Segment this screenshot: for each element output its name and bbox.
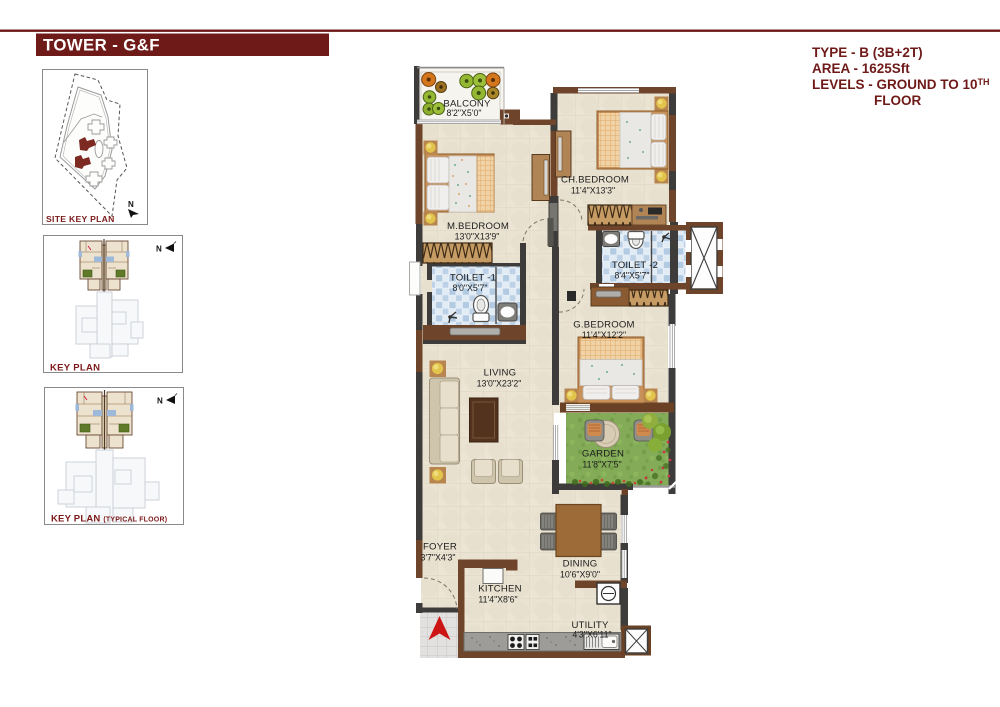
svg-text:TYPE - B (3B+2T): TYPE - B (3B+2T) [812, 45, 923, 60]
svg-text:GARDEN: GARDEN [582, 449, 624, 460]
svg-text:G.BEDROOM: G.BEDROOM [573, 320, 635, 331]
svg-text:13'0"X13'9": 13'0"X13'9" [455, 232, 500, 242]
svg-text:SITE KEY PLAN: SITE KEY PLAN [46, 214, 115, 224]
svg-text:11'4"X8'6": 11'4"X8'6" [478, 595, 517, 605]
svg-text:CH.BEDROOM: CH.BEDROOM [561, 175, 629, 186]
svg-text:11'4"X13'3": 11'4"X13'3" [571, 186, 615, 196]
svg-text:10'6"X9'0": 10'6"X9'0" [560, 570, 600, 580]
svg-text:TOILET -1: TOILET -1 [450, 273, 496, 284]
svg-text:8'4"X5'7": 8'4"X5'7" [614, 271, 649, 281]
svg-text:AREA - 1625Sft: AREA - 1625Sft [812, 61, 910, 76]
svg-text:M.BEDROOM: M.BEDROOM [447, 221, 509, 232]
svg-text:11'8"X7'5": 11'8"X7'5" [582, 460, 621, 470]
svg-text:N: N [157, 397, 163, 406]
svg-text:LIVING: LIVING [484, 368, 517, 379]
svg-text:KEY PLAN: KEY PLAN [50, 363, 100, 374]
svg-text:DINING: DINING [563, 559, 598, 570]
svg-text:8'2"X5'0": 8'2"X5'0" [446, 108, 481, 118]
svg-text:3'7"X4'3": 3'7"X4'3" [420, 553, 455, 563]
svg-text:TOWER - G&F: TOWER - G&F [43, 36, 160, 55]
svg-text:LEVELS - GROUND TO 10TH: LEVELS - GROUND TO 10TH [812, 77, 990, 92]
svg-text:FLOOR: FLOOR [874, 93, 921, 108]
svg-text:4'3"X6'11": 4'3"X6'11" [572, 630, 611, 640]
svg-text:FOYER: FOYER [423, 542, 457, 553]
svg-text:TOILET -2: TOILET -2 [612, 260, 658, 271]
svg-text:8'0"X5'7": 8'0"X5'7" [452, 283, 487, 293]
svg-text:KITCHEN: KITCHEN [478, 584, 522, 595]
svg-text:N: N [128, 200, 134, 209]
svg-text:11'4"X12'2": 11'4"X12'2" [582, 330, 626, 340]
svg-text:13'0"X23'2": 13'0"X23'2" [477, 379, 522, 389]
svg-text:N: N [156, 245, 162, 254]
